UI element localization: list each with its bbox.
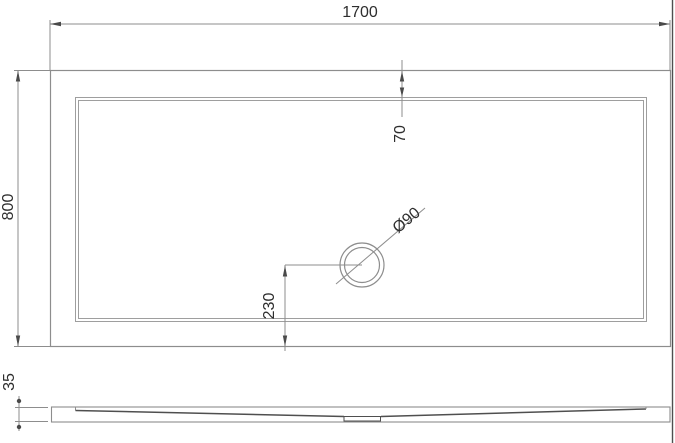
dim-rim-inset bbox=[400, 60, 404, 117]
arrow-left-icon bbox=[50, 22, 61, 27]
dim-dot-icon bbox=[17, 425, 21, 429]
tray-inner-rim-rect bbox=[76, 98, 647, 322]
dim-dot-icon bbox=[17, 399, 21, 403]
arrow-up-icon bbox=[16, 71, 20, 82]
dim-tray-height-label: 35 bbox=[2, 373, 18, 391]
profile-floor-slope-right bbox=[381, 409, 646, 417]
drawing-geometry bbox=[0, 0, 675, 443]
dim-tray-height bbox=[15, 396, 48, 431]
dim-drain-offset-label: 230 bbox=[262, 293, 278, 320]
shower-tray-technical-drawing: 1700 800 70 Ø90 230 35 bbox=[0, 0, 675, 443]
dim-depth bbox=[14, 70, 50, 347]
dim-width bbox=[50, 20, 670, 70]
arrow-right-icon bbox=[659, 22, 670, 27]
profile-floor-slope-left bbox=[76, 411, 345, 417]
plan-view-outline bbox=[51, 71, 671, 347]
dim-rim-inset-label: 70 bbox=[393, 125, 409, 143]
dim-depth-label: 800 bbox=[1, 194, 17, 221]
arrow-up-icon bbox=[400, 71, 404, 82]
tray-outer-rect bbox=[51, 71, 671, 347]
arrow-down-icon bbox=[16, 336, 20, 347]
arrow-up-icon bbox=[283, 266, 287, 277]
arrow-down-icon bbox=[400, 88, 404, 98]
profile-drain-recess bbox=[344, 417, 381, 422]
tray-inner-rim-rect-2 bbox=[79, 101, 644, 319]
profile-view bbox=[52, 407, 671, 422]
dim-width-label: 1700 bbox=[342, 5, 378, 21]
arrow-down-icon bbox=[283, 336, 287, 347]
profile-outline bbox=[52, 407, 671, 422]
